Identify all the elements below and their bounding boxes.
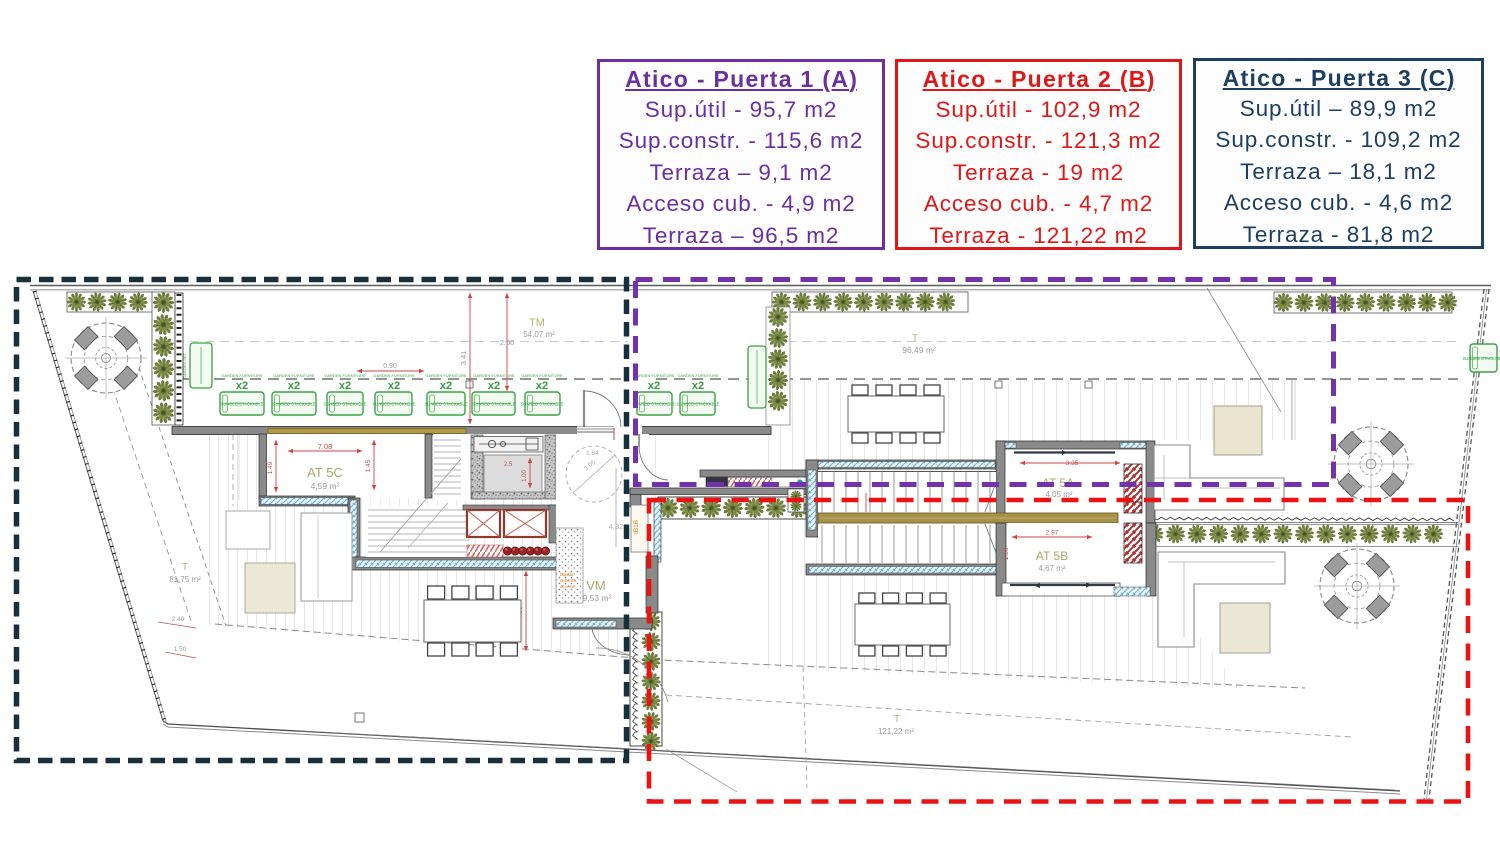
svg-text:GARDEN FURNITURE: GARDEN FURNITURE — [473, 373, 515, 378]
svg-text:2.60: 2.60 — [500, 338, 515, 347]
svg-text:x2: x2 — [339, 380, 351, 392]
svg-text:3.35: 3.35 — [1066, 460, 1079, 467]
svg-text:AT 5B: AT 5B — [1036, 549, 1068, 563]
svg-text:x2: x2 — [536, 380, 548, 392]
svg-text:acceso: acceso — [560, 584, 575, 589]
svg-text:x2: x2 — [236, 380, 248, 392]
svg-text:SUNBED STACKABLE: SUNBED STACKABLE — [1463, 356, 1500, 361]
svg-text:GARDEN FURNITURE: GARDEN FURNITURE — [273, 373, 315, 378]
svg-text:4,67 m²: 4,67 m² — [1038, 564, 1065, 573]
svg-text:1.49: 1.49 — [267, 461, 274, 474]
svg-text:GARDEN FURNITURE: GARDEN FURNITURE — [677, 373, 719, 378]
svg-text:1.00: 1.00 — [522, 470, 528, 482]
svg-text:GARDEN FURNITURE: GARDEN FURNITURE — [425, 373, 467, 378]
svg-text:T: T — [894, 714, 900, 725]
svg-text:T: T — [182, 562, 188, 573]
svg-text:SUNBED STACKABLE: SUNBED STACKABLE — [521, 402, 564, 407]
svg-text:x2: x2 — [648, 380, 660, 392]
svg-text:cubierta: cubierta — [560, 578, 577, 583]
svg-text:SUNBED STACKABLE: SUNBED STACKABLE — [324, 402, 367, 407]
svg-text:1.50: 1.50 — [174, 646, 187, 653]
svg-text:4.82: 4.82 — [609, 522, 624, 531]
svg-text:SUNBED STACKABLE: SUNBED STACKABLE — [373, 402, 416, 407]
svg-text:SUNBED STACKABLE: SUNBED STACKABLE — [273, 402, 316, 407]
svg-text:VM: VM — [586, 578, 606, 593]
svg-text:7.08: 7.08 — [318, 442, 333, 451]
svg-text:x2: x2 — [388, 380, 400, 392]
svg-text:0.90: 0.90 — [383, 363, 397, 370]
svg-text:x2: x2 — [288, 380, 300, 392]
svg-text:3.41: 3.41 — [459, 351, 468, 366]
svg-text:SUNBED STACKABLE: SUNBED STACKABLE — [677, 402, 720, 407]
svg-text:96,49 m²: 96,49 m² — [902, 345, 936, 355]
svg-text:81,75 m²: 81,75 m² — [169, 575, 201, 584]
svg-text:IB1B: IB1B — [633, 520, 640, 534]
svg-text:GARDEN FURNITURE: GARDEN FURNITURE — [373, 373, 415, 378]
svg-text:bajada: bajada — [560, 572, 574, 577]
svg-text:SUNBED STACKABLE: SUNBED STACKABLE — [425, 402, 468, 407]
svg-text:x2: x2 — [692, 380, 704, 392]
svg-text:GARDEN FURNITURE: GARDEN FURNITURE — [633, 373, 675, 378]
svg-text:2.5: 2.5 — [504, 462, 513, 468]
svg-text:SUNBED STACKABLE: SUNBED STACKABLE — [633, 402, 676, 407]
svg-text:GARDEN FURNITURE: GARDEN FURNITURE — [324, 373, 366, 378]
svg-text:GARDEN SET: GARDEN SET — [182, 352, 187, 379]
svg-text:9,53 m²: 9,53 m² — [583, 593, 612, 603]
svg-text:1.84: 1.84 — [586, 450, 599, 457]
svg-text:4,05 m²: 4,05 m² — [1045, 490, 1072, 499]
svg-text:AT 5C: AT 5C — [307, 465, 343, 480]
svg-text:2.40: 2.40 — [172, 616, 185, 623]
svg-text:2.97: 2.97 — [1046, 530, 1059, 537]
svg-text:T: T — [912, 333, 918, 344]
svg-text:1.45: 1.45 — [365, 459, 372, 472]
svg-text:GARDEN FURNITURE: GARDEN FURNITURE — [221, 373, 263, 378]
svg-text:TM: TM — [529, 317, 545, 329]
svg-text:121,22 m²: 121,22 m² — [878, 727, 914, 736]
svg-text:4,59 m²: 4,59 m² — [311, 481, 340, 491]
svg-text:1.50: 1.50 — [1003, 547, 1010, 560]
svg-text:SUNBED STACKABLE: SUNBED STACKABLE — [221, 402, 264, 407]
svg-text:x2: x2 — [440, 380, 452, 392]
svg-text:x2: x2 — [488, 380, 500, 392]
svg-text:SUNBED STACKABLE: SUNBED STACKABLE — [473, 402, 516, 407]
svg-text:GARDEN FURNITURE: GARDEN FURNITURE — [521, 373, 563, 378]
svg-text:54,07 m²: 54,07 m² — [523, 330, 555, 339]
